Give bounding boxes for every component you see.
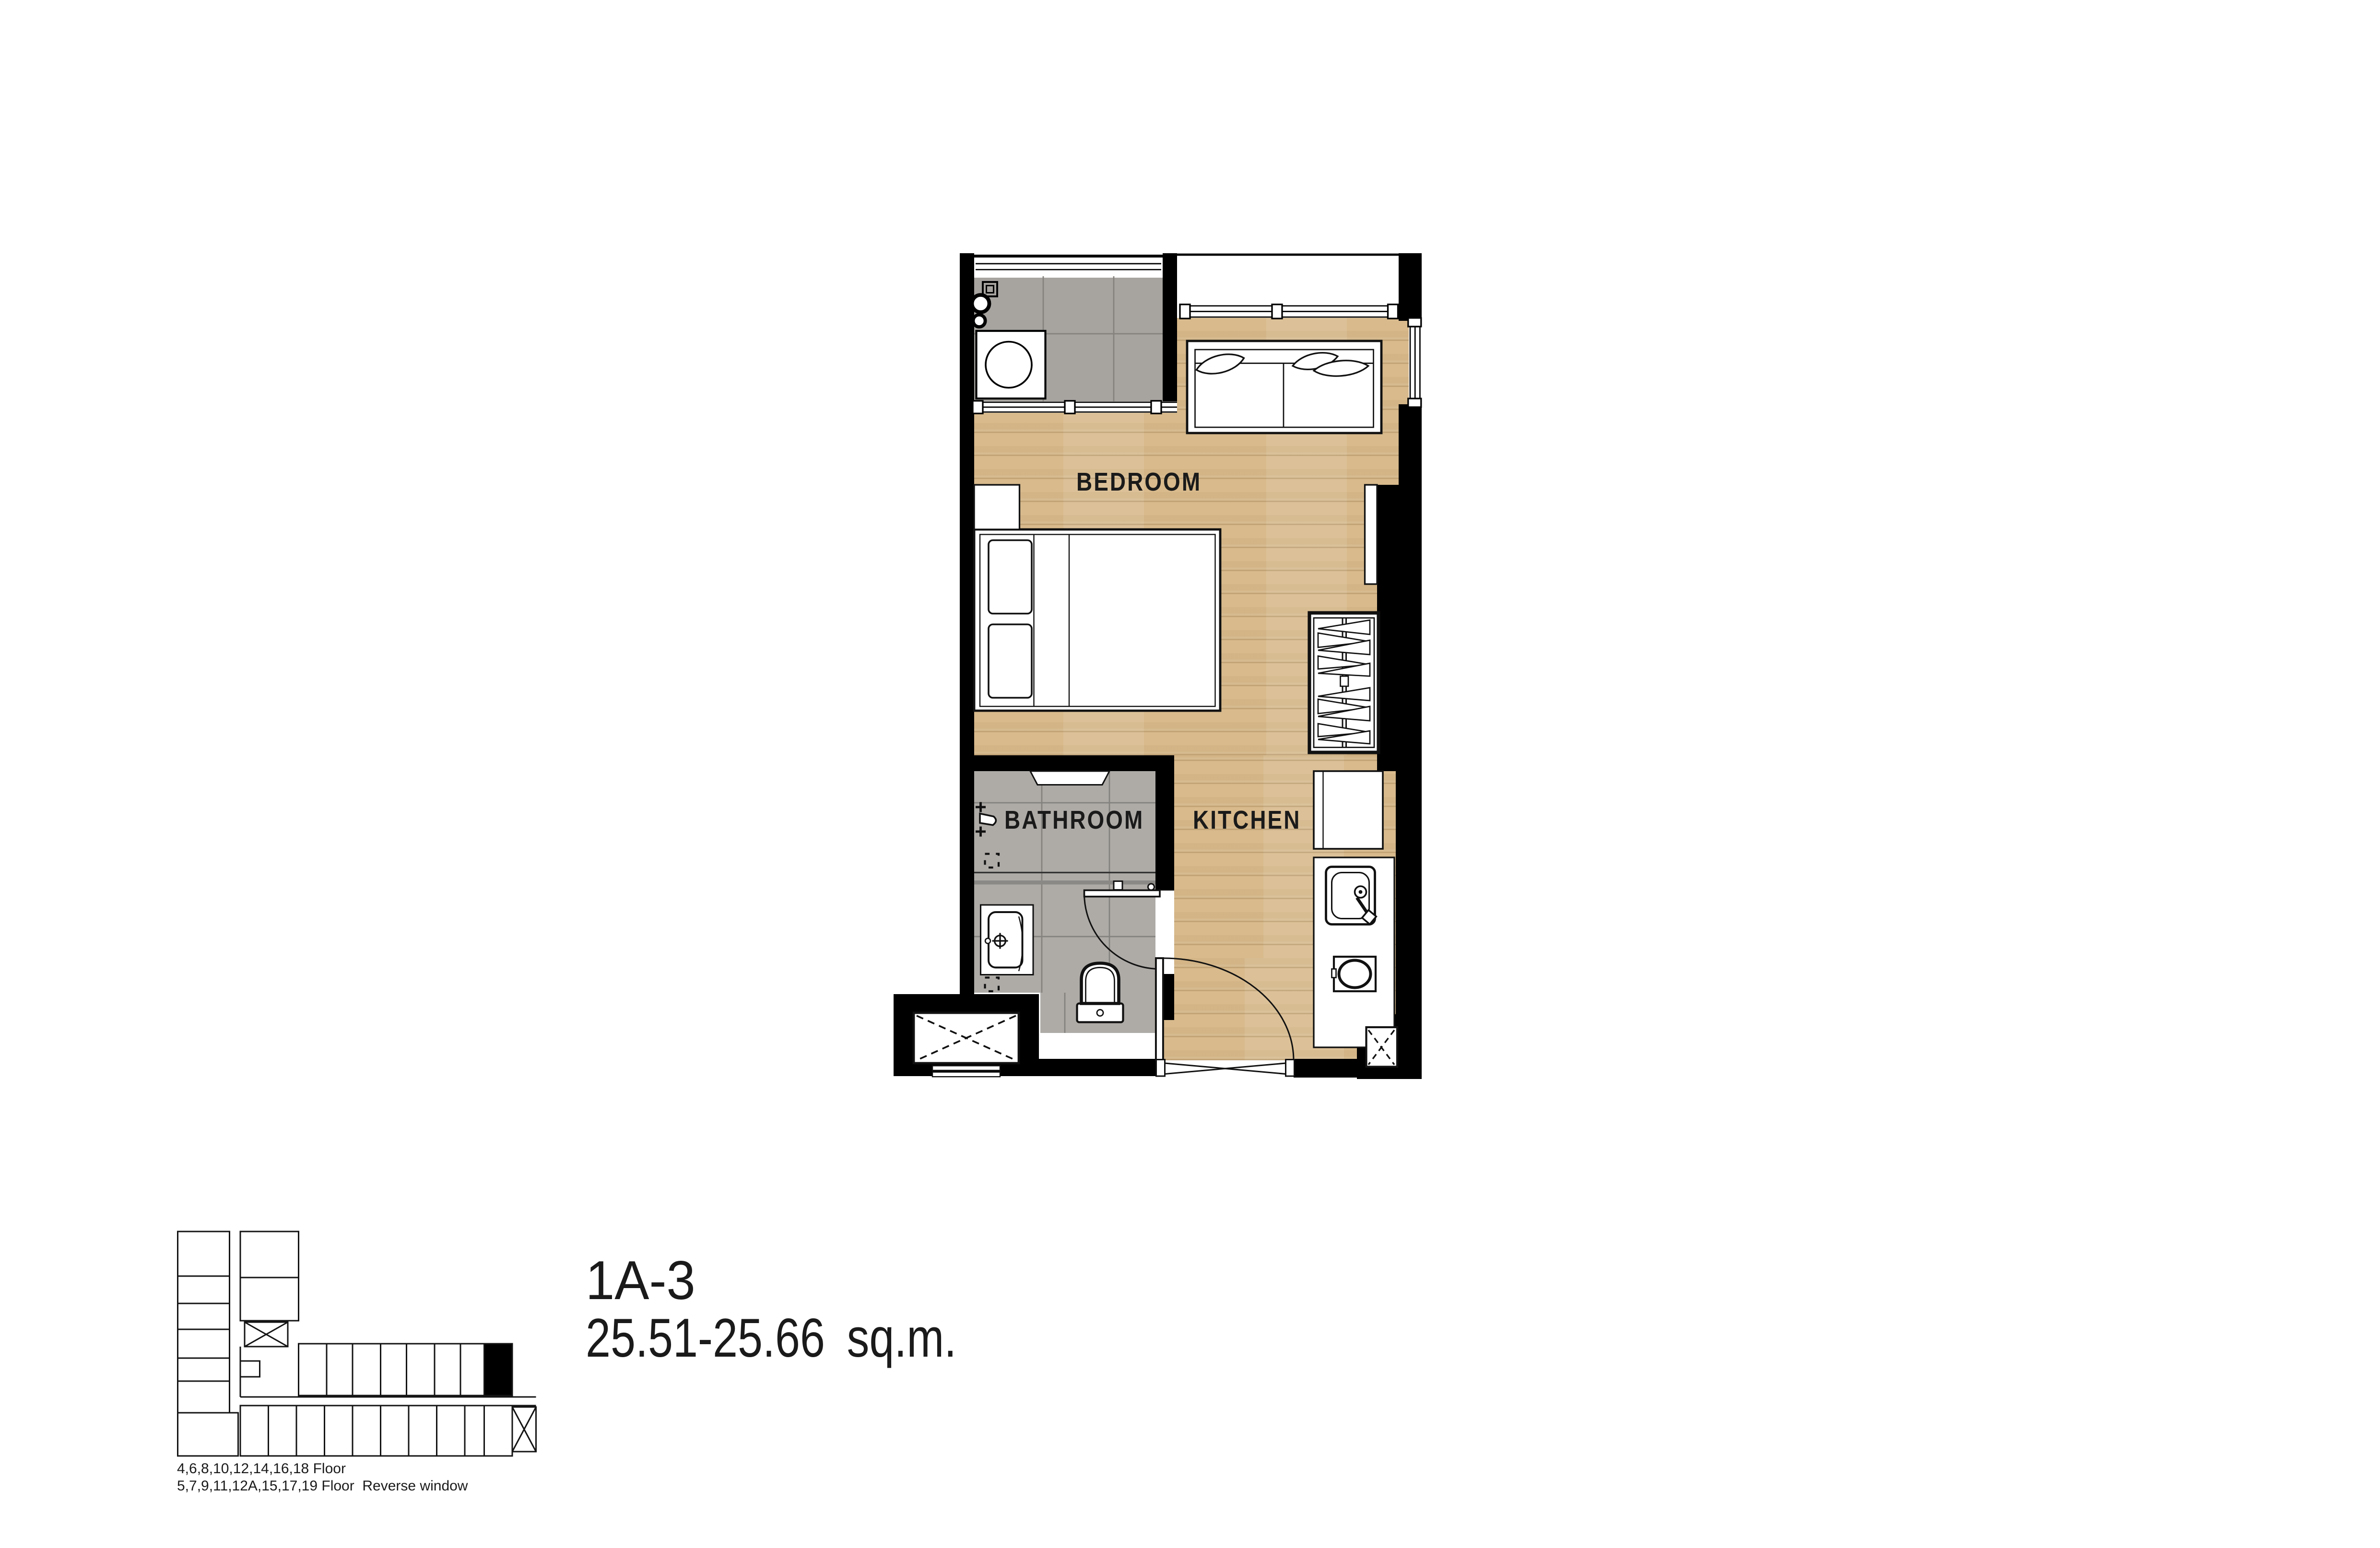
key-plan-highlighted-unit bbox=[484, 1344, 513, 1396]
floor-note-1: 4,6,8,10,12,14,16,18 Floor bbox=[177, 1462, 346, 1479]
page: BEDROOM BATHROOM KITCHEN 1A-3 25.51-25.6… bbox=[0, 0, 2380, 1548]
floor-note-2: 5,7,9,11,12A,15,17,19 Floor Reverse wind… bbox=[177, 1479, 468, 1496]
key-plan-drawing bbox=[0, 0, 2380, 1548]
key-plan-corner-unit bbox=[178, 1413, 238, 1456]
key-plan-elevator bbox=[245, 1322, 288, 1347]
key-plan: 4,6,8,10,12,14,16,18 Floor 5,7,9,11,12A,… bbox=[0, 0, 2380, 1548]
key-plan-elevator bbox=[512, 1407, 536, 1452]
